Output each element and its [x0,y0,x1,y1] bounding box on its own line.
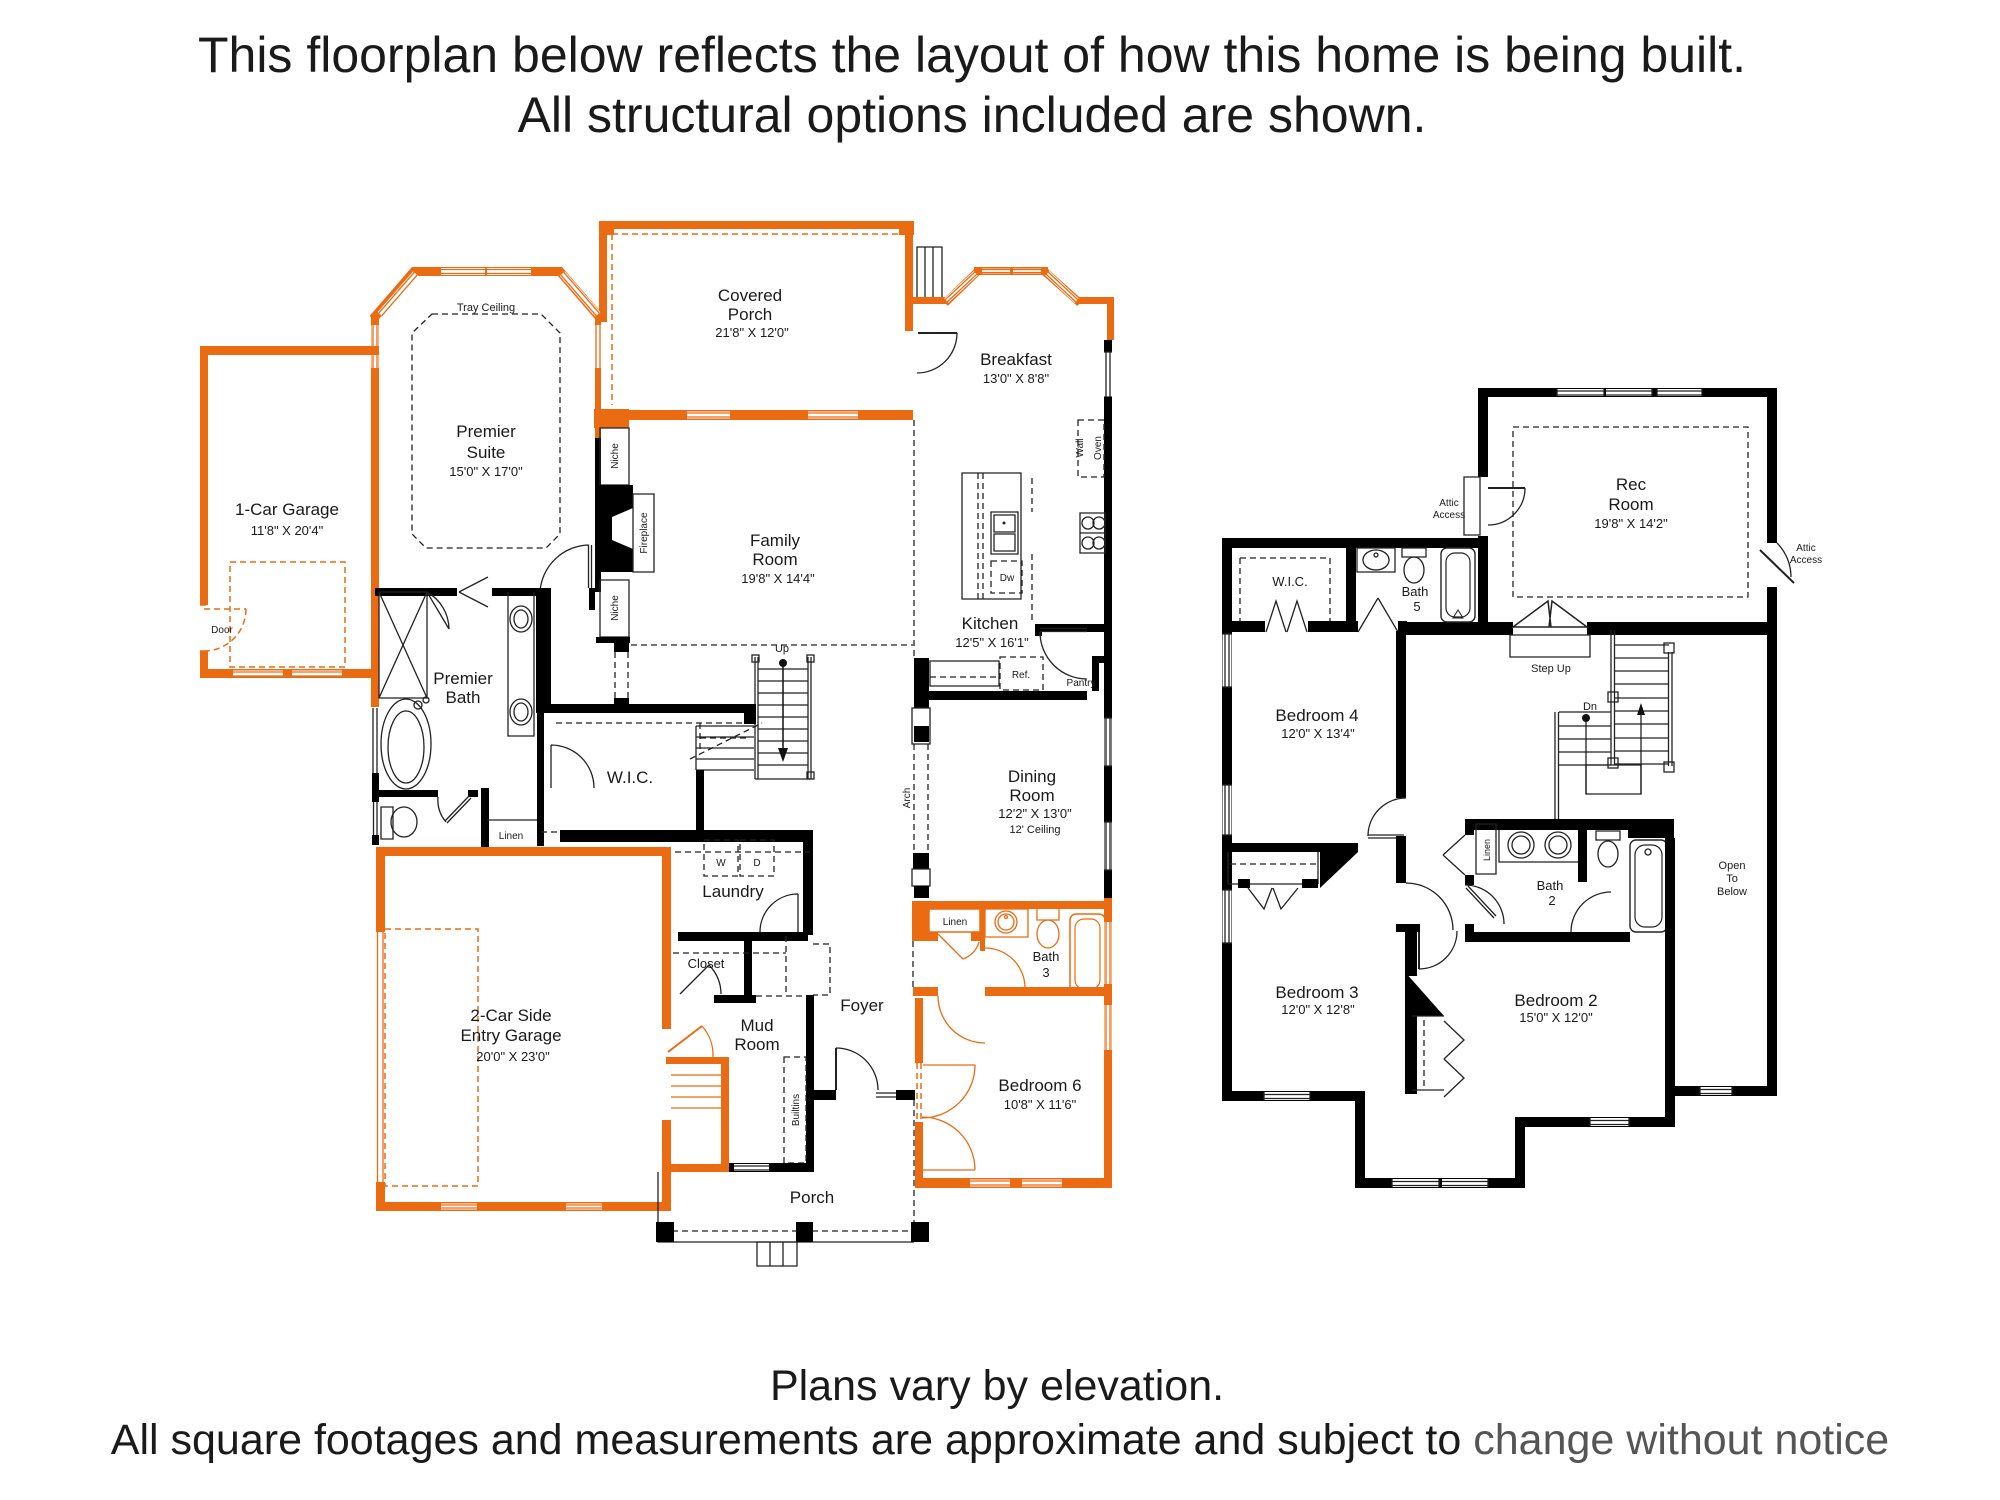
svg-text:13'0" X 8'8": 13'0" X 8'8" [983,371,1050,386]
svg-text:Plans vary by elevation.: Plans vary by elevation. [770,1362,1224,1410]
svg-text:20'0" X 23'0": 20'0" X 23'0" [476,1049,550,1064]
svg-text:Bath: Bath [446,688,481,707]
svg-text:Up: Up [775,643,789,655]
svg-text:Closet: Closet [688,956,725,971]
svg-text:Bedroom 2: Bedroom 2 [1514,991,1597,1010]
svg-text:Covered: Covered [718,286,782,305]
svg-text:1-Car Garage: 1-Car Garage [235,500,339,519]
svg-text:Fireplace: Fireplace [639,512,650,554]
svg-text:W.I.C.: W.I.C. [607,768,653,787]
svg-text:Oven: Oven [1093,436,1104,460]
svg-text:Bedroom 6: Bedroom 6 [998,1076,1081,1095]
svg-text:This floorplan below reflects: This floorplan below reflects the layout… [198,27,1746,83]
svg-text:Bath: Bath [1402,584,1429,599]
svg-text:Room: Room [1608,495,1653,514]
svg-text:Bath: Bath [1033,949,1060,964]
svg-text:Door: Door [211,625,233,636]
svg-text:Dining: Dining [1008,767,1056,786]
svg-text:D: D [753,858,760,869]
svg-text:11'8" X 20'4": 11'8" X 20'4" [251,523,324,538]
svg-text:Room: Room [734,1035,779,1054]
svg-text:Rec: Rec [1616,475,1647,494]
svg-text:19'8" X 14'2": 19'8" X 14'2" [1594,516,1668,531]
svg-text:Family: Family [750,531,801,550]
svg-text:Dw: Dw [1000,573,1015,584]
svg-text:Pantry: Pantry [1067,678,1096,689]
svg-text:Kitchen: Kitchen [962,614,1019,633]
svg-text:Access: Access [1790,555,1822,566]
svg-text:Ref.: Ref. [1012,670,1030,681]
svg-text:19'8" X 14'4": 19'8" X 14'4" [741,571,815,586]
svg-text:Linen: Linen [499,831,523,842]
svg-text:W: W [716,858,726,869]
svg-text:Porch: Porch [728,305,772,324]
svg-text:Entry Garage: Entry Garage [460,1026,561,1045]
svg-text:Attic: Attic [1439,498,1458,509]
svg-text:Laundry: Laundry [702,882,764,901]
svg-text:Niche: Niche [610,443,621,469]
svg-text:5: 5 [1413,599,1420,614]
svg-text:3: 3 [1042,965,1049,980]
svg-text:Bedroom 4: Bedroom 4 [1275,706,1358,725]
svg-text:15'0" X 17'0": 15'0" X 17'0" [449,464,523,479]
svg-text:2-Car Side: 2-Car Side [470,1006,551,1025]
svg-text:12'0" X 13'4": 12'0" X 13'4" [1281,726,1355,741]
svg-text:Attic: Attic [1796,543,1815,554]
svg-text:Breakfast: Breakfast [980,350,1052,369]
svg-text:All structural options include: All structural options included are show… [518,87,1427,143]
svg-text:Porch: Porch [790,1188,834,1207]
svg-text:Niche: Niche [610,595,621,621]
svg-text:2: 2 [1548,893,1555,908]
svg-text:Step Up: Step Up [1531,663,1571,675]
svg-text:12'0" X 12'8": 12'0" X 12'8" [1281,1002,1355,1017]
svg-text:Mud: Mud [740,1016,773,1035]
svg-text:12' Ceiling: 12' Ceiling [1009,824,1060,836]
svg-text:All square footages and measur: All square footages and measurements are… [111,1416,1889,1464]
svg-text:Room: Room [752,550,797,569]
svg-text:12'5" X 16'1": 12'5" X 16'1" [955,635,1029,650]
svg-text:15'0" X 12'0": 15'0" X 12'0" [1519,1010,1593,1025]
svg-text:Builtins: Builtins [791,1094,802,1126]
svg-text:Wall: Wall [1075,438,1086,457]
svg-text:To: To [1726,873,1738,885]
svg-text:Linen: Linen [1482,839,1492,861]
svg-text:21'8" X 12'0": 21'8" X 12'0" [715,325,789,340]
svg-text:Room: Room [1009,786,1054,805]
svg-text:12'2" X 13'0": 12'2" X 13'0" [998,806,1072,821]
svg-text:Bath: Bath [1537,878,1564,893]
svg-text:Bedroom 3: Bedroom 3 [1275,983,1358,1002]
svg-text:Arch: Arch [902,788,913,809]
svg-text:Dn: Dn [1583,701,1597,713]
svg-text:Premier: Premier [456,422,516,441]
svg-text:Access: Access [1433,510,1465,521]
svg-text:Premier: Premier [433,669,493,688]
svg-text:Foyer: Foyer [840,996,884,1015]
svg-text:W.I.C.: W.I.C. [1272,574,1307,589]
svg-text:Tray Ceiling: Tray Ceiling [457,302,515,314]
svg-text:Linen: Linen [943,917,967,928]
svg-text:Below: Below [1717,886,1747,898]
svg-text:Open: Open [1719,860,1746,872]
svg-text:Suite: Suite [467,443,506,462]
svg-text:10'8" X 11'6": 10'8" X 11'6" [1004,1097,1077,1112]
